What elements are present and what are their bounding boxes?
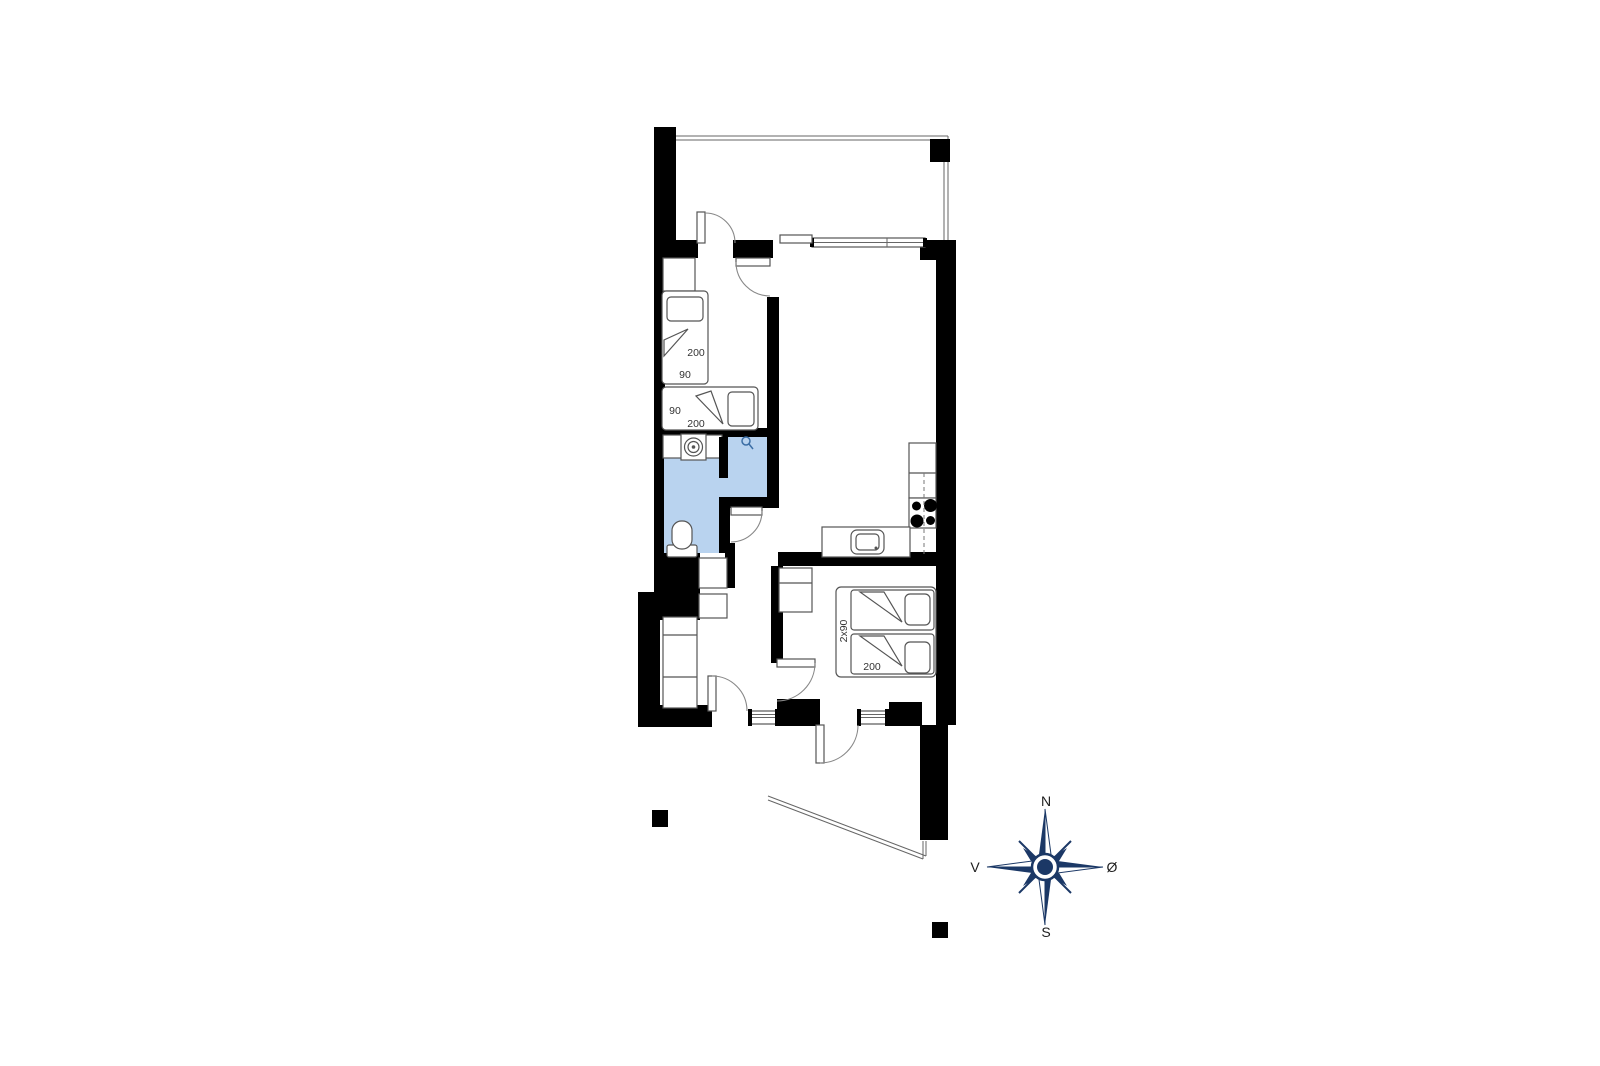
kitchen (822, 443, 937, 557)
double-bed-length-label: 200 (863, 661, 881, 673)
pillow (728, 392, 754, 426)
compass-west-label: V (970, 859, 980, 875)
hall-wardrobe (663, 617, 697, 708)
bedroom2-closet (779, 568, 812, 612)
compass-north-label: N (1041, 793, 1051, 809)
shower-partition (719, 437, 728, 478)
floor-plan-drawing: 200 90 90 200 2x90 200 (0, 0, 1600, 1066)
pillow (905, 642, 930, 673)
single-bed-2: 90 200 (662, 387, 758, 430)
wall-bathroom-lower-horizontal (719, 497, 779, 508)
wall-top-left (654, 127, 676, 258)
kitchen-tall-cabinet (909, 443, 936, 498)
wall-top-b (733, 240, 773, 258)
washbasin-icon (681, 434, 706, 460)
wall-divider-vertical (767, 297, 779, 507)
door-terrace (697, 212, 735, 243)
double-bed-width-label: 2x90 (838, 619, 850, 642)
door-bedroom1 (736, 258, 770, 296)
window-living-room-terrace (810, 238, 927, 247)
pillar-terrace-corner (930, 139, 950, 162)
double-bed: 2x90 200 (836, 587, 936, 677)
single-bed-1: 200 90 (662, 291, 708, 384)
stove-burner (911, 515, 924, 528)
stove-burner (924, 499, 937, 512)
window-hall-bottom (748, 709, 779, 726)
site-boundary-diagonal-line (768, 796, 926, 859)
hall-cabinet-lower (699, 594, 727, 618)
door-bathroom (731, 507, 762, 542)
wall-bottom-right (889, 702, 922, 726)
kitchen-counter (822, 527, 910, 557)
bed1-length-label: 200 (687, 347, 705, 359)
bed1-width-label: 90 (679, 369, 691, 381)
wall-right (936, 240, 956, 725)
stove-burner (912, 502, 921, 511)
floor-plan-canvas: 200 90 90 200 2x90 200 (0, 0, 1600, 1066)
compass-south-label: S (1041, 924, 1050, 940)
door-entrance (816, 725, 858, 763)
wall-bottom-mid (777, 699, 820, 726)
pillow (905, 594, 930, 625)
door-hall (708, 676, 747, 711)
pillow (667, 297, 703, 321)
door-bedroom2 (777, 659, 815, 701)
wall-top-a (654, 240, 698, 258)
bed2-width-label: 90 (669, 405, 681, 417)
compass-center (1037, 859, 1053, 875)
compass-rose: N Ø S V (970, 793, 1117, 940)
compass-east-label: Ø (1107, 859, 1118, 875)
window-bedroom2-bottom (857, 709, 889, 726)
bed2-length-label: 200 (687, 418, 705, 430)
window-sill-small (780, 235, 812, 243)
bedroom1-cabinet (663, 258, 695, 291)
bathroom (663, 434, 767, 557)
pillar-site-right (932, 922, 948, 938)
wall-right-lower-column (920, 725, 948, 840)
hall-cabinet-upper (699, 558, 727, 588)
wall-block-below-bathroom (654, 553, 700, 620)
stove-burner (926, 516, 935, 525)
terrace-railing-line (676, 136, 948, 240)
pillar-site-left (652, 810, 668, 827)
